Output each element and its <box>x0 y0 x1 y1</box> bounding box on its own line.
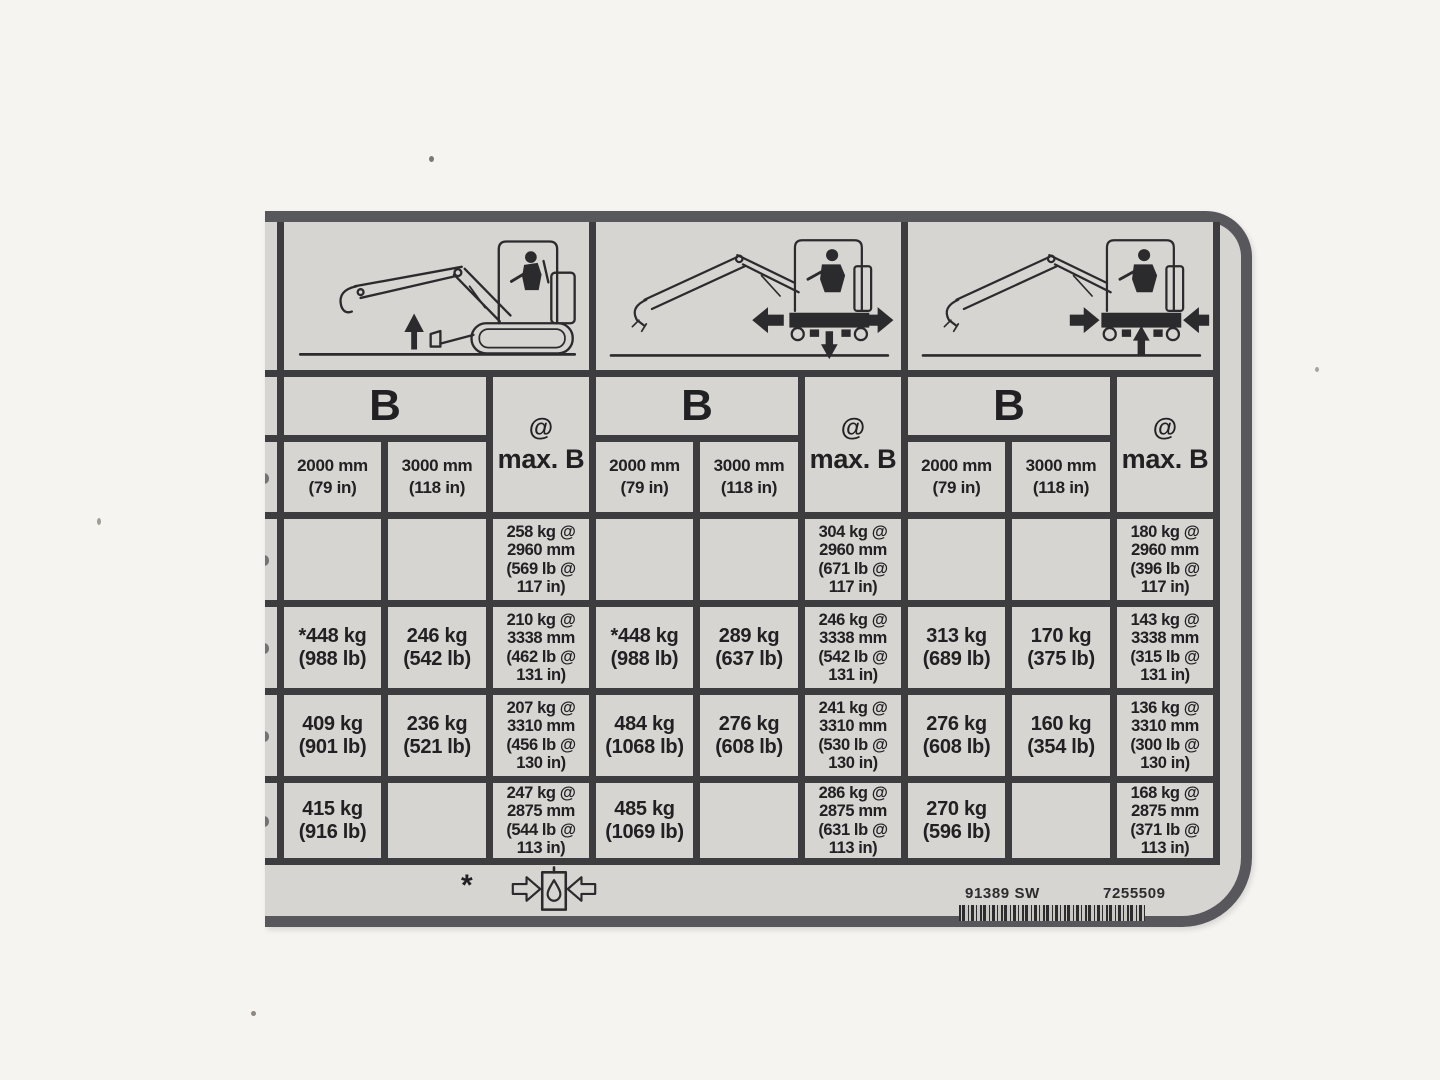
dust-speck <box>1315 367 1319 372</box>
capacity-cell: 289 kg (637 lb) <box>700 607 798 688</box>
capacity-cell: 313 kg (689 lb) <box>908 607 1005 688</box>
distance-mm: 2000 mm <box>297 455 368 477</box>
part-number-right: 7255509 <box>1103 885 1166 902</box>
capacity-cell: 246 kg (542 lb) <box>388 607 486 688</box>
capacity-cell <box>388 519 486 600</box>
column-header-3000mm: 3000 mm (118 in) <box>1012 442 1110 512</box>
capacity-cell: 485 kg (1069 lb) <box>596 783 693 858</box>
capacity-cell: 409 kg (901 lb) <box>284 695 381 776</box>
distance-mm: 2000 mm <box>609 455 680 477</box>
distance-in: (79 in) <box>621 477 669 499</box>
distance-in: (118 in) <box>409 477 465 499</box>
hydraulic-cylinder-droplet-arrows-icon <box>503 866 605 912</box>
distance-in: (79 in) <box>309 477 357 499</box>
capacity-cell-max-b: 136 kg @ 3310 mm (300 lb @ 130 in) <box>1117 695 1213 776</box>
capacity-cell-max-b: 304 kg @ 2960 mm (671 lb @ 117 in) <box>805 519 901 600</box>
capacity-cell-max-b: 258 kg @ 2960 mm (569 lb @ 117 in) <box>493 519 589 600</box>
dust-speck <box>97 518 101 525</box>
dust-speck <box>251 1011 256 1016</box>
capacity-cell <box>1012 783 1110 858</box>
barcode <box>959 905 1145 921</box>
at-sign: @ <box>1153 414 1177 443</box>
distance-in: (118 in) <box>1033 477 1089 499</box>
capacity-cell: 170 kg (375 lb) <box>1012 607 1110 688</box>
column-header-2000mm: 2000 mm (79 in) <box>908 442 1005 512</box>
distance-mm: 3000 mm <box>402 455 473 477</box>
cropped-column-sliver <box>265 442 277 512</box>
column-header-2000mm: 2000 mm (79 in) <box>596 442 693 512</box>
asterisk-footnote: * <box>461 869 473 903</box>
max-b-label: max. B <box>498 444 585 475</box>
excavator-rear-view-arrows-in-up-icon <box>908 222 1213 370</box>
distance-mm: 2000 mm <box>921 455 992 477</box>
cropped-column-sliver <box>265 695 277 776</box>
at-sign: @ <box>841 414 865 443</box>
column-header-3000mm: 3000 mm (118 in) <box>700 442 798 512</box>
capacity-cell: 276 kg (608 lb) <box>700 695 798 776</box>
capacity-cell-max-b: 207 kg @ 3310 mm (456 lb @ 130 in) <box>493 695 589 776</box>
max-b-label: max. B <box>810 444 897 475</box>
capacity-cell <box>388 783 486 858</box>
photo-of-excavator-load-capacity-decal: { "page": { "background": "#f5f4f1" }, "… <box>0 0 1440 1080</box>
column-header-3000mm: 3000 mm (118 in) <box>388 442 486 512</box>
distance-in: (79 in) <box>933 477 981 499</box>
capacity-cell: *448 kg (988 lb) <box>596 607 693 688</box>
capacity-cell: 276 kg (608 lb) <box>908 695 1005 776</box>
capacity-cell <box>596 519 693 600</box>
column-header-b: B <box>284 377 486 435</box>
distance-mm: 3000 mm <box>714 455 785 477</box>
capacity-cell-max-b: 210 kg @ 3338 mm (462 lb @ 131 in) <box>493 607 589 688</box>
column-header-b: B <box>596 377 798 435</box>
capacity-cell-max-b: 286 kg @ 2875 mm (631 lb @ 113 in) <box>805 783 901 858</box>
capacity-cell <box>700 519 798 600</box>
excavator-side-view-blade-arrow-up-icon <box>284 222 589 370</box>
column-header-max-b: @ max. B <box>1117 377 1213 512</box>
cropped-column-sliver <box>265 222 277 370</box>
capacity-cell <box>1012 519 1110 600</box>
capacity-cell <box>700 783 798 858</box>
cropped-column-sliver <box>265 377 277 435</box>
dust-speck <box>429 156 434 162</box>
column-header-max-b: @ max. B <box>805 377 901 512</box>
max-b-label: max. B <box>1122 444 1209 475</box>
cropped-column-sliver <box>265 783 277 858</box>
cropped-column-sliver <box>265 519 277 600</box>
capacity-cell: 270 kg (596 lb) <box>908 783 1005 858</box>
capacity-cell: 484 kg (1068 lb) <box>596 695 693 776</box>
capacity-cell-max-b: 247 kg @ 2875 mm (544 lb @ 113 in) <box>493 783 589 858</box>
distance-mm: 3000 mm <box>1026 455 1097 477</box>
capacity-table: B @ max. B B @ max. B B @ max. B 2000 mm… <box>265 222 1220 865</box>
capacity-cell: 415 kg (916 lb) <box>284 783 381 858</box>
column-header-2000mm: 2000 mm (79 in) <box>284 442 381 512</box>
excavator-rear-view-arrows-out-down-icon <box>596 222 901 370</box>
capacity-cell <box>908 519 1005 600</box>
capacity-cell-max-b: 143 kg @ 3338 mm (315 lb @ 131 in) <box>1117 607 1213 688</box>
capacity-cell: 236 kg (521 lb) <box>388 695 486 776</box>
capacity-cell-max-b: 168 kg @ 2875 mm (371 lb @ 113 in) <box>1117 783 1213 858</box>
cropped-column-sliver <box>265 607 277 688</box>
column-header-b: B <box>908 377 1110 435</box>
decal-footer: * 91389 SW 7255509 <box>265 865 1241 914</box>
distance-in: (118 in) <box>721 477 777 499</box>
at-sign: @ <box>529 414 553 443</box>
load-capacity-decal: B @ max. B B @ max. B B @ max. B 2000 mm… <box>265 211 1252 927</box>
capacity-cell: *448 kg (988 lb) <box>284 607 381 688</box>
column-header-max-b: @ max. B <box>493 377 589 512</box>
capacity-cell-max-b: 246 kg @ 3338 mm (542 lb @ 131 in) <box>805 607 901 688</box>
capacity-cell-max-b: 241 kg @ 3310 mm (530 lb @ 130 in) <box>805 695 901 776</box>
part-number-left: 91389 SW <box>965 885 1040 902</box>
capacity-cell: 160 kg (354 lb) <box>1012 695 1110 776</box>
capacity-cell-max-b: 180 kg @ 2960 mm (396 lb @ 117 in) <box>1117 519 1213 600</box>
capacity-cell <box>284 519 381 600</box>
